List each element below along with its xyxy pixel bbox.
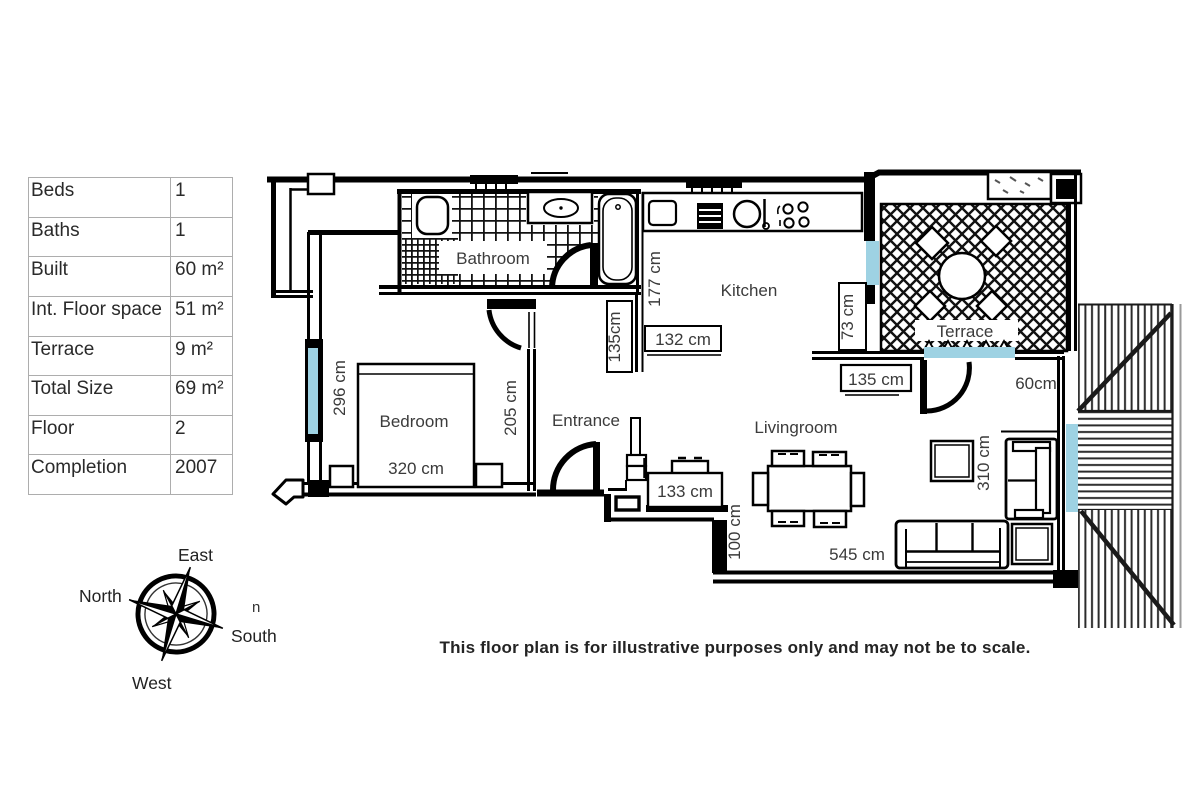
svg-text:320 cm: 320 cm	[388, 459, 444, 478]
svg-text:Bedroom: Bedroom	[380, 412, 449, 431]
svg-text:135cm: 135cm	[605, 311, 624, 362]
svg-text:132 cm: 132 cm	[655, 330, 711, 349]
svg-text:Kitchen: Kitchen	[721, 281, 778, 300]
svg-text:Entrance: Entrance	[552, 411, 620, 430]
svg-text:100 cm: 100 cm	[725, 504, 744, 560]
svg-text:296 cm: 296 cm	[330, 360, 349, 416]
svg-text:73 cm: 73 cm	[838, 294, 857, 340]
svg-text:135 cm: 135 cm	[848, 370, 904, 389]
svg-text:Bathroom: Bathroom	[456, 249, 530, 268]
svg-text:545 cm: 545 cm	[829, 545, 885, 564]
svg-text:205 cm: 205 cm	[501, 380, 520, 436]
svg-text:133 cm: 133 cm	[657, 482, 713, 501]
svg-text:310 cm: 310 cm	[974, 435, 993, 491]
svg-text:177 cm: 177 cm	[645, 251, 664, 307]
svg-text:60cm: 60cm	[1015, 374, 1057, 393]
svg-text:Terrace: Terrace	[937, 322, 994, 341]
svg-text:Livingroom: Livingroom	[754, 418, 837, 437]
